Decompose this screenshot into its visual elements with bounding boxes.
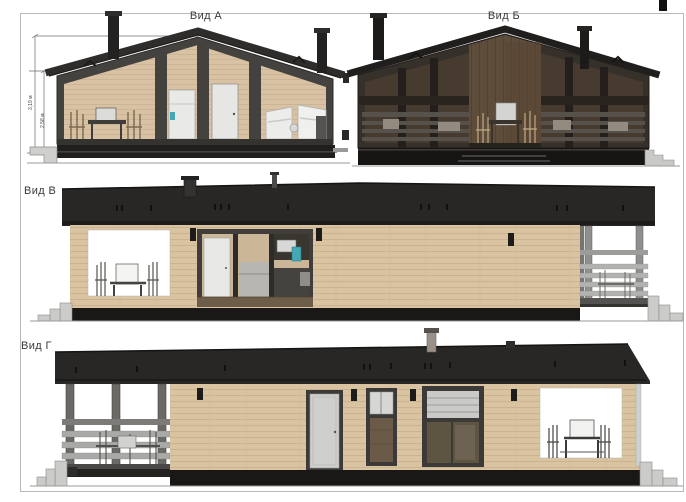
- view-v-roof: [62, 183, 655, 226]
- view-a-step: [30, 147, 57, 163]
- view-v-glass-wall: [197, 229, 313, 307]
- view-g-porch: [62, 384, 170, 477]
- view-a-side-vent: [342, 130, 349, 140]
- view-g-stairs-right: [640, 462, 677, 486]
- view-v-stairs-right: [648, 296, 683, 321]
- view-g-roof: [55, 344, 650, 384]
- view-a-mullion: [197, 41, 209, 139]
- view-g-elevation: [30, 328, 683, 486]
- view-b-elevation: [351, 13, 680, 166]
- view-b-chimney-left: [370, 13, 387, 60]
- view-a-mullion: [249, 57, 261, 139]
- view-g-corner-trim: [636, 384, 641, 466]
- view-g-narrow-window: [366, 388, 397, 466]
- view-v-stairs-left: [38, 303, 72, 321]
- view-a-foundation: [57, 145, 348, 158]
- view-b-step: [645, 150, 674, 166]
- view-v-elevation: [30, 172, 683, 321]
- view-v-label: Вид В: [24, 185, 56, 197]
- view-a-elevation: [27, 11, 350, 163]
- view-v-porch: [580, 226, 650, 307]
- view-g-roof-vent: [506, 341, 515, 348]
- view-g-large-window: [422, 386, 484, 467]
- view-g-stairs-left: [37, 461, 67, 486]
- view-g-open-corner: [540, 388, 622, 458]
- view-a-house: [27, 11, 350, 163]
- view-g-label: Вид Г: [21, 340, 52, 352]
- view-v-open-corner: [88, 230, 170, 296]
- view-b-beam: [541, 96, 649, 105]
- view-a-kitchen: [169, 90, 195, 139]
- view-v-foundation: [70, 308, 580, 321]
- view-b-house: [351, 13, 680, 166]
- view-a-label: Вид А: [175, 10, 237, 22]
- view-b-label: Вид Б: [473, 10, 535, 22]
- elevation-drawing-canvas: [0, 0, 686, 502]
- view-a-mullion: [155, 50, 167, 139]
- drawing-sheet: Вид А Вид Б Вид В Вид Г 3,19 м 2,58 м: [0, 0, 686, 502]
- view-b-foundation: [358, 148, 649, 165]
- dimension-total-height: 3,19 м: [28, 95, 34, 110]
- dimension-wall-height: 2,58 м: [40, 113, 46, 128]
- view-a-interior-door: [212, 84, 238, 139]
- view-a-floor: [57, 139, 333, 145]
- view-g-foundation: [170, 470, 640, 486]
- view-g-porch-base: [67, 467, 77, 476]
- view-b-beam: [358, 96, 469, 105]
